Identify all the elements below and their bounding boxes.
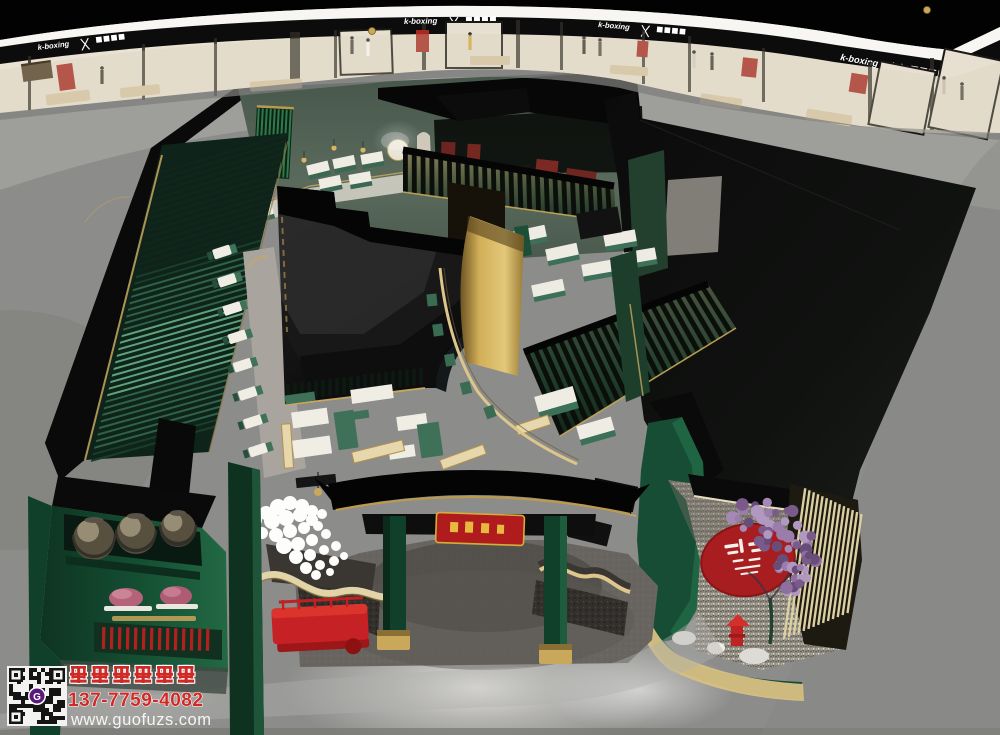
svg-text:www.guofuzs.com: www.guofuzs.com [70,711,211,729]
svg-text:k-boxing: k-boxing [404,16,438,26]
svg-text:G: G [33,692,41,703]
svg-text:137-7759-4082: 137-7759-4082 [68,690,203,711]
